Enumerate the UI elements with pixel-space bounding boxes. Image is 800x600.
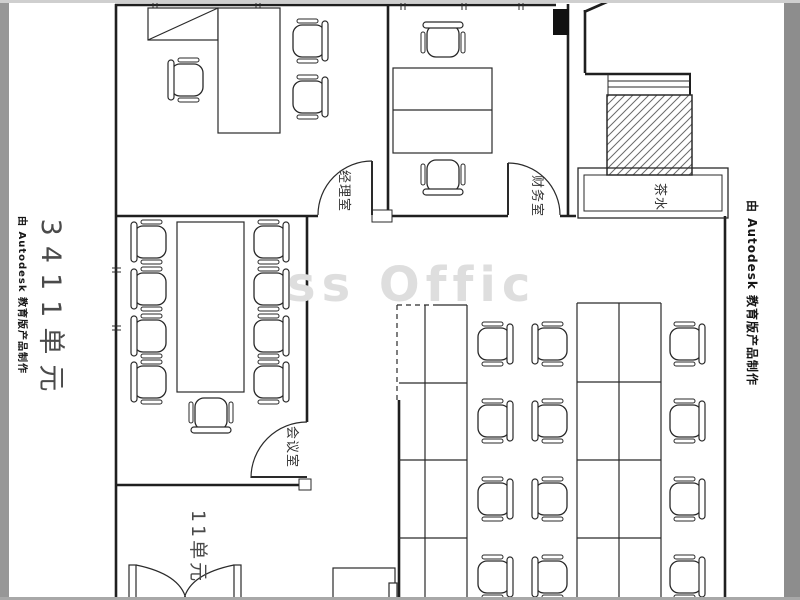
shaft-hatch — [607, 95, 692, 175]
room-label-manager: 经理室 — [336, 166, 350, 216]
column-filled — [553, 9, 569, 35]
center-watermark: ss Offic — [287, 257, 536, 313]
autodesk-watermark-left: 由 Autodesk 教育版产品制作 — [14, 205, 28, 385]
unit-label-entry: 11单元 — [186, 502, 210, 592]
autodesk-watermark-right: 由 Autodesk 教育版产品制作 — [745, 188, 759, 398]
left-border-strip — [0, 0, 9, 600]
top-border-strip — [0, 0, 800, 3]
floor-plan-screenshot: ss Offic 3411单元 11单元 经理室 财务室 会议室 茶水 由 Au… — [0, 0, 800, 600]
unit-label-main: 3411单元 — [34, 200, 66, 420]
manager-office-furniture — [148, 8, 328, 133]
room-label-finance: 财务室 — [529, 171, 543, 221]
room-label-tea: 茶水 — [652, 179, 666, 215]
right-border-strip — [784, 0, 800, 600]
conference-room-furniture — [131, 220, 289, 433]
room-label-meeting: 会议室 — [284, 422, 298, 472]
finance-room-furniture — [393, 22, 492, 195]
